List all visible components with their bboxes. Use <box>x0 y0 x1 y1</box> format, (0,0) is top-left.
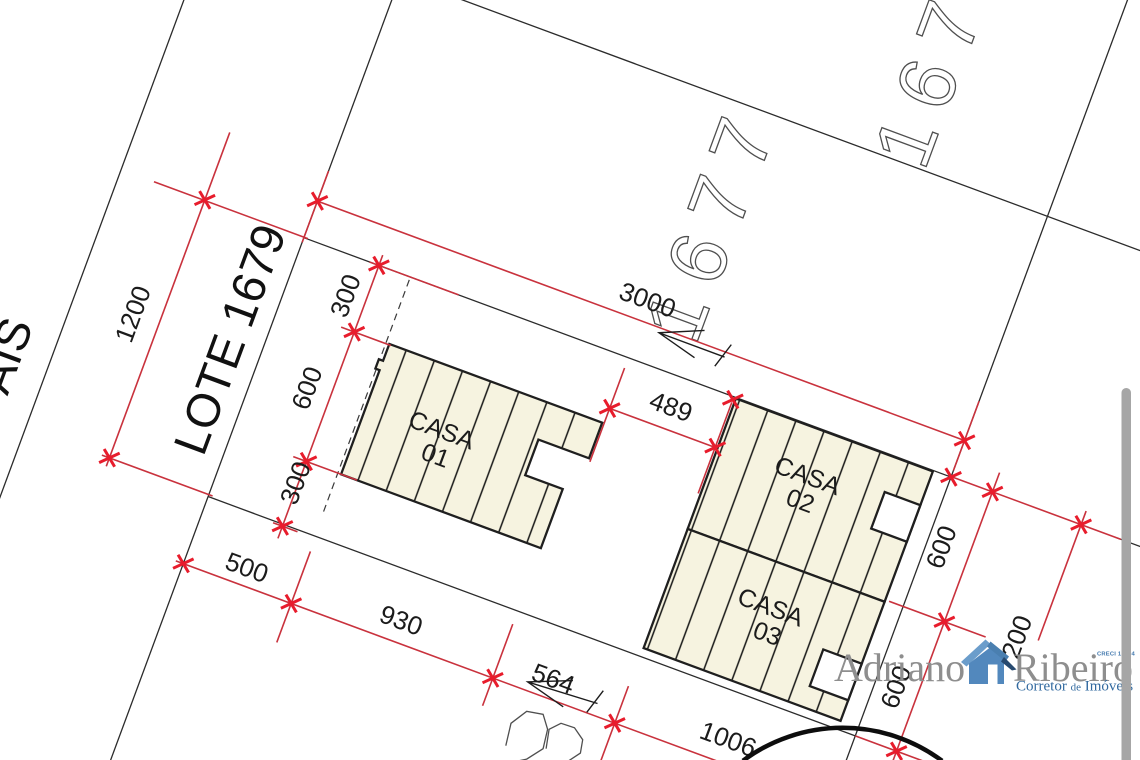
svg-text:Corretor de Imóveis: Corretor de Imóveis <box>1016 679 1133 695</box>
svg-text:Adriano: Adriano <box>834 645 965 690</box>
